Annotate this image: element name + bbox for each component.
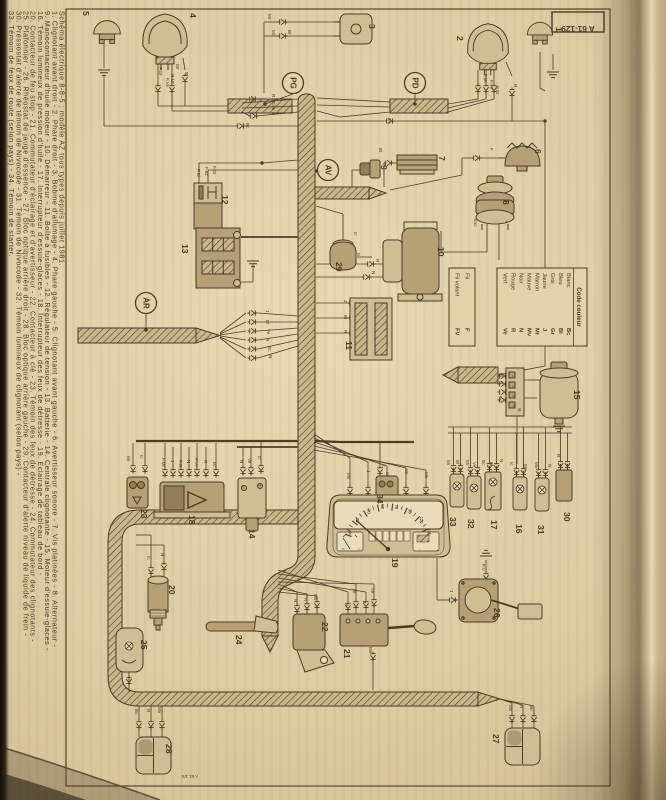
component-number: 20 bbox=[167, 585, 177, 595]
wire-label: R.Mr.Ve bbox=[271, 94, 276, 111]
color-name: Mauve bbox=[525, 273, 531, 290]
color-code: Bc bbox=[565, 328, 571, 336]
wire-label: Ve bbox=[472, 462, 477, 468]
component-number: 24 bbox=[234, 635, 244, 645]
color-code: Mv bbox=[525, 328, 531, 337]
component-number: 8 bbox=[501, 200, 511, 205]
wire-label: + bbox=[240, 485, 245, 488]
light-horn-switch-21 bbox=[340, 614, 437, 646]
dial-number: 50 bbox=[380, 504, 385, 509]
component-number: 5 bbox=[81, 11, 91, 16]
wire-label: Bl bbox=[287, 30, 292, 34]
wire-label: Ve bbox=[247, 458, 252, 464]
wire-label: R.Mr bbox=[170, 74, 175, 84]
pressostat-30 bbox=[556, 464, 572, 501]
component-number: 14 bbox=[247, 529, 257, 539]
dial-number: 70 bbox=[394, 504, 399, 509]
dial-number: 130 bbox=[426, 528, 431, 536]
color-name: Blanc bbox=[565, 273, 571, 288]
wire-label: F.Bl bbox=[196, 169, 201, 177]
wire-label: Ic bbox=[146, 556, 151, 560]
wire-label: F.Mr bbox=[483, 74, 488, 83]
hazard-telltale-23 bbox=[127, 477, 148, 508]
turn-signal-right-1 bbox=[527, 22, 552, 44]
taillight-left-28 bbox=[136, 737, 171, 774]
wire-label: Bl bbox=[343, 315, 348, 319]
headlamp-right-2 bbox=[468, 24, 509, 76]
color-code: Mr bbox=[533, 328, 539, 336]
component-number: 31 bbox=[536, 525, 546, 535]
wire-label: N bbox=[499, 381, 504, 384]
wire-label: F.Ve bbox=[194, 458, 199, 467]
color-name: Bleu bbox=[557, 273, 563, 285]
wire-label: F.Gr bbox=[212, 166, 217, 175]
telltale-32 bbox=[467, 470, 481, 509]
wire-label: Mr bbox=[175, 64, 180, 70]
wire-label: N bbox=[239, 460, 244, 463]
ref-tab: A 61-129 bbox=[561, 24, 595, 33]
wire-label: Ic bbox=[353, 232, 358, 236]
wire-label: N bbox=[186, 460, 191, 463]
wire-label: N bbox=[517, 408, 522, 411]
starter-10 bbox=[383, 222, 442, 301]
zone-label: PG bbox=[289, 77, 298, 89]
wire-label: J bbox=[362, 601, 367, 603]
wire-label: N bbox=[499, 459, 504, 462]
wiper-motor-15 bbox=[506, 362, 578, 424]
wire-label: Bl bbox=[378, 148, 383, 152]
wire-label: Mv bbox=[157, 707, 162, 714]
wire-label: Mr bbox=[446, 460, 451, 466]
wire-label: F.Ve bbox=[489, 80, 494, 89]
wire-label: J bbox=[449, 590, 454, 592]
wire-label: Bc bbox=[481, 460, 486, 466]
dome-light-25 bbox=[116, 628, 143, 672]
component-number: 15 bbox=[572, 390, 582, 400]
wire-label: R bbox=[547, 464, 552, 468]
scanned-manual-page: 0103050709011013001-+1234 PGPDAVAR 12345… bbox=[0, 0, 666, 800]
wire-label: Ic bbox=[139, 455, 144, 459]
wire-label: Ve bbox=[370, 588, 375, 594]
wire-label: Mr bbox=[126, 456, 131, 462]
turn-signal-left-5 bbox=[94, 21, 121, 44]
harness-bands bbox=[78, 94, 500, 706]
wire-label: J bbox=[265, 310, 270, 312]
nivocode-telltale-31 bbox=[535, 472, 549, 511]
oil-telltale-16 bbox=[513, 471, 527, 510]
wire-label: Mv bbox=[424, 472, 429, 479]
color-name: Gris bbox=[549, 273, 555, 284]
color-code: J bbox=[541, 328, 547, 331]
wire-label: J bbox=[343, 300, 348, 302]
component-number: 26 bbox=[492, 608, 502, 618]
oil-switch-9 bbox=[360, 160, 380, 178]
wire-label: R bbox=[146, 709, 151, 713]
component-number: 33 bbox=[448, 517, 458, 527]
horn-6 bbox=[498, 143, 540, 171]
wire-label: J bbox=[170, 460, 175, 462]
component-number: 28 bbox=[164, 744, 174, 754]
wire-label: R bbox=[265, 338, 270, 342]
regulator-12 bbox=[194, 183, 222, 229]
wire-label: Ve bbox=[266, 329, 271, 335]
wire-label: Bc bbox=[134, 709, 139, 715]
wire-label: J bbox=[366, 470, 371, 472]
wire-code: F bbox=[464, 328, 470, 332]
component-number: 32 bbox=[466, 519, 476, 529]
hazard-switch-18 bbox=[154, 482, 230, 518]
wire-label: Exc bbox=[473, 219, 478, 227]
wire-label: N bbox=[268, 355, 273, 358]
component-number: 12 bbox=[220, 195, 230, 205]
component-number: 7 bbox=[437, 156, 447, 161]
wire-name: Fil volant bbox=[454, 273, 460, 297]
wire-label: Mv bbox=[368, 647, 373, 654]
battery-13 bbox=[196, 228, 241, 288]
color-code: Ve bbox=[502, 328, 508, 336]
color-code-table: Code couleurBlancBcBleuBlGrisGrJauneJMar… bbox=[449, 268, 587, 346]
dial-number: 30 bbox=[366, 509, 371, 514]
wire-label: Bl bbox=[265, 320, 270, 324]
component-number: 25 bbox=[139, 640, 149, 650]
component-number: 22 bbox=[320, 622, 330, 632]
component-number: 30 bbox=[562, 512, 572, 522]
component-number: 9 bbox=[379, 165, 389, 170]
component-number: 18 bbox=[187, 515, 197, 525]
component-number: 34 bbox=[375, 494, 385, 504]
wire-label: Mv bbox=[346, 473, 351, 480]
zone-label: AR bbox=[142, 297, 151, 309]
component-number: 16 bbox=[514, 524, 524, 534]
zone-label: PD bbox=[411, 77, 420, 88]
wire-label: Mr bbox=[404, 469, 409, 475]
fusebox-11 bbox=[350, 298, 392, 360]
battery-mark: + bbox=[435, 549, 440, 552]
color-name: Vert bbox=[502, 273, 508, 284]
wire-label: Mr bbox=[465, 460, 470, 466]
color-name: Noir bbox=[518, 273, 524, 284]
dial-number: 90 bbox=[408, 509, 413, 514]
book-gutter-shadow bbox=[0, 0, 9, 800]
wire-label: Bl bbox=[352, 589, 357, 593]
fuel-mark: 0 bbox=[341, 548, 345, 550]
component-number: 29 bbox=[334, 262, 344, 272]
wire-label: F.Ve bbox=[165, 78, 170, 87]
wire-label: N bbox=[344, 603, 349, 606]
wire-label: R bbox=[203, 460, 208, 464]
wire-label: Mr bbox=[356, 253, 361, 259]
wire-label: F.Gr bbox=[178, 460, 183, 469]
wire-label: Mv bbox=[534, 462, 539, 469]
wire-label: Bc bbox=[245, 123, 250, 129]
wire-label: + bbox=[504, 220, 509, 223]
turn-stalk-24 bbox=[206, 616, 278, 633]
wire-label: J bbox=[271, 112, 276, 114]
headlamp-left-4 bbox=[143, 14, 187, 70]
component-number: 10 bbox=[436, 247, 446, 257]
wiper-switch-17 bbox=[485, 466, 501, 510]
color-name: Jaune bbox=[541, 273, 547, 289]
color-name: Rouge bbox=[510, 273, 516, 290]
corner-shadow bbox=[496, 620, 666, 800]
wire-label: F.V bbox=[481, 564, 486, 572]
wire-label: F.Gr bbox=[495, 86, 500, 95]
wire-label: R bbox=[513, 84, 518, 88]
wire-label: Ic bbox=[509, 462, 514, 466]
wire-label: Mr bbox=[271, 30, 276, 36]
dial-number: 110 bbox=[419, 517, 424, 524]
component-number: 4 bbox=[188, 13, 198, 18]
component-number: 3 bbox=[367, 24, 377, 29]
wire-label: Mv bbox=[313, 594, 318, 601]
component-number: 21 bbox=[342, 649, 352, 659]
wire-label: Bc bbox=[267, 346, 272, 352]
print-mark: A 61 1/4 bbox=[181, 774, 198, 779]
wire-label: N bbox=[160, 553, 165, 556]
color-code: Gr bbox=[549, 328, 555, 336]
points-7 bbox=[397, 155, 437, 174]
wire-label: Bc bbox=[212, 462, 217, 468]
zone-label: AV bbox=[324, 165, 333, 176]
component-number: 2 bbox=[455, 36, 465, 41]
telltale-33 bbox=[450, 468, 464, 507]
component-number: 17 bbox=[489, 520, 499, 530]
wire-name: Fil bbox=[464, 273, 470, 279]
wire-label: F bbox=[489, 148, 494, 151]
fuel-mark: 1 bbox=[357, 548, 361, 550]
wire-label: Bl bbox=[489, 462, 494, 466]
wire-label: F.Bc bbox=[204, 167, 209, 177]
wire-label: F.Mr bbox=[161, 458, 166, 467]
table-header: Code couleur bbox=[575, 287, 582, 327]
caption: Schéma électrique 8-8-5 ; modèle AZ tous… bbox=[7, 11, 66, 651]
wire-label: Bl bbox=[455, 460, 460, 464]
color-code: Bl bbox=[557, 328, 563, 334]
wire-label: Mv bbox=[523, 464, 528, 471]
wire-label: N bbox=[371, 271, 376, 274]
wire-code: FV bbox=[454, 328, 460, 336]
wire-label: F.Gr bbox=[158, 67, 163, 76]
component-number: 13 bbox=[180, 244, 190, 254]
component-number: 19 bbox=[390, 558, 400, 568]
wire-label: Mr bbox=[267, 14, 272, 20]
component-number: 23 bbox=[139, 509, 149, 519]
component-number: 6 bbox=[533, 149, 543, 154]
wire-label: R bbox=[375, 259, 380, 263]
component-number: 11 bbox=[344, 341, 354, 350]
wire-label: Bc bbox=[387, 118, 392, 124]
wire-label: Bc bbox=[498, 396, 503, 402]
color-name: Marron bbox=[533, 273, 539, 291]
coil-3 bbox=[334, 14, 372, 44]
stop-switch-20 bbox=[148, 576, 168, 630]
color-code: N bbox=[518, 328, 524, 332]
wire-label: Bl bbox=[499, 373, 504, 377]
wire-label: N bbox=[293, 599, 298, 602]
